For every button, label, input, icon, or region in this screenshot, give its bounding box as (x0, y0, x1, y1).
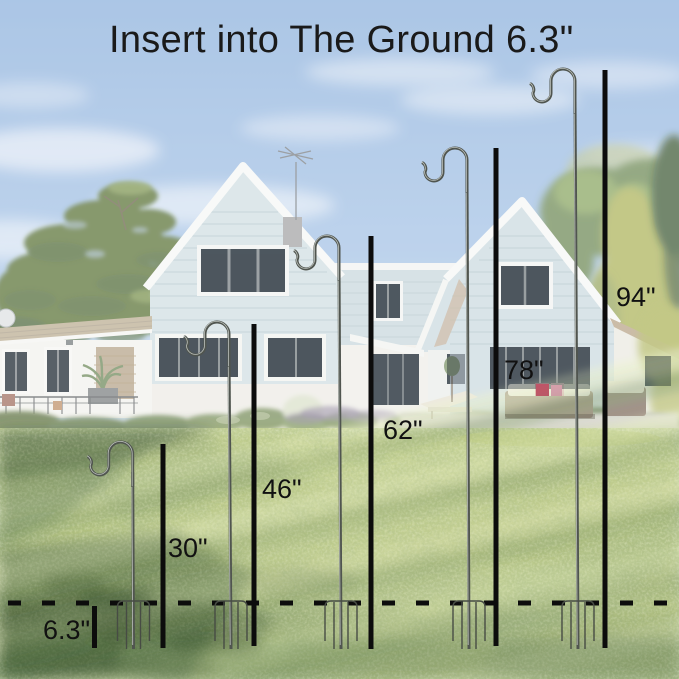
svg-text:94": 94" (616, 282, 656, 312)
svg-text:46": 46" (262, 474, 302, 504)
svg-text:Insert into The Ground 6.3": Insert into The Ground 6.3" (109, 19, 574, 61)
svg-text:62": 62" (383, 415, 423, 445)
svg-text:6.3": 6.3" (43, 615, 90, 645)
svg-text:78": 78" (504, 355, 544, 385)
svg-text:30": 30" (168, 533, 208, 563)
